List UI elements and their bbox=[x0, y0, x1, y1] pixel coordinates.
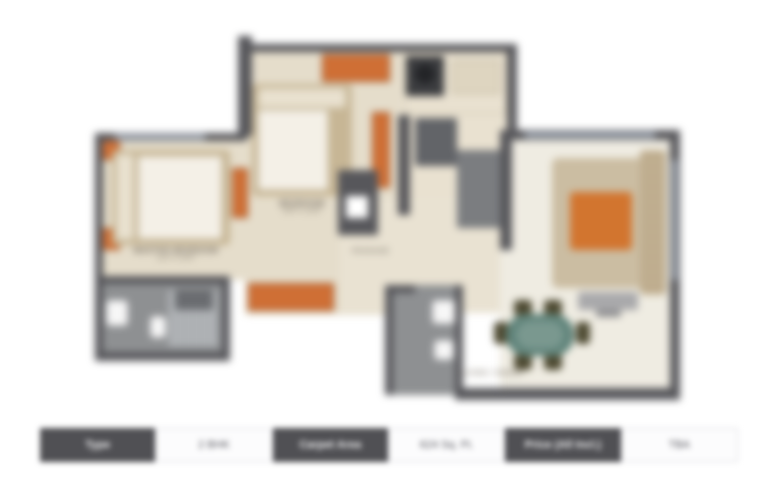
wall-bath-right bbox=[222, 276, 230, 360]
wall-left-outer bbox=[95, 133, 103, 360]
master-bed-pillows bbox=[116, 154, 134, 240]
price-value-cell: TBA bbox=[621, 428, 738, 462]
window-master-top bbox=[115, 134, 205, 140]
utility-shaft bbox=[415, 118, 457, 166]
window-living-right bbox=[672, 160, 677, 280]
toilet1-basin bbox=[150, 316, 166, 338]
floor-plan: MASTER BEDROOM 11'0" X 10'0" BEDROOM 10'… bbox=[0, 0, 780, 420]
floor-plan-blur-layer: MASTER BEDROOM 11'0" X 10'0" BEDROOM 10'… bbox=[0, 0, 780, 420]
passage-label: PASSAGE bbox=[352, 248, 432, 255]
dining-chair-right bbox=[576, 322, 590, 344]
wall-toilet2-right bbox=[455, 285, 463, 395]
master-bedroom-label: MASTER BEDROOM 11'0" X 10'0" bbox=[121, 246, 231, 262]
toilet2-wc bbox=[432, 300, 456, 324]
wall-bedroom2-kitchen bbox=[398, 115, 410, 215]
wall-bath-bottom bbox=[95, 352, 230, 361]
toilet1-counter bbox=[175, 290, 213, 310]
bedroom2-bed-pillows bbox=[258, 88, 346, 108]
wall-master-bath-divider bbox=[95, 276, 230, 284]
carpet-area-header-cell: Carpet Area bbox=[273, 428, 388, 462]
type-header-cell: Type bbox=[40, 428, 155, 462]
wall-living-left bbox=[500, 130, 512, 250]
core-appliance bbox=[346, 196, 368, 218]
bedroom2-dims: 10'0" X 10'0" bbox=[257, 208, 347, 215]
wall-toilet2-top bbox=[385, 285, 415, 293]
bedroom2-label: BEDROOM 10'0" X 10'0" bbox=[257, 199, 347, 215]
master-bedroom-name: MASTER BEDROOM bbox=[121, 246, 231, 255]
type-value-cell: 2 BHK bbox=[155, 428, 272, 462]
master-bedroom-dims: 11'0" X 10'0" bbox=[121, 255, 231, 262]
toilet1-wc bbox=[106, 300, 128, 326]
bedroom2-bed-blanket bbox=[258, 110, 328, 190]
dining-chair-bottom-right bbox=[544, 354, 562, 370]
master-bed-blanket bbox=[138, 156, 222, 239]
wall-living-bottom bbox=[455, 388, 680, 400]
wall-kitchen-right bbox=[507, 44, 517, 134]
kitchen-sink bbox=[415, 64, 435, 84]
window-living-top bbox=[525, 132, 655, 138]
carpet-area-value-cell: 624 Sq. Ft. bbox=[388, 428, 505, 462]
side-rug bbox=[640, 150, 666, 295]
master-wardrobe bbox=[232, 168, 248, 218]
hall-wardrobe bbox=[248, 283, 334, 311]
dining-chair-bottom-left bbox=[514, 354, 532, 370]
tv-unit-base bbox=[596, 310, 621, 317]
toilet2-basin bbox=[434, 340, 454, 360]
dining-table-top bbox=[516, 321, 564, 349]
tv-unit bbox=[578, 292, 638, 310]
sofa-cushion bbox=[570, 192, 632, 250]
living-dining-label: LIVING / DINING bbox=[462, 370, 562, 377]
wall-top bbox=[245, 44, 515, 52]
bedroom2-dresser bbox=[322, 54, 390, 82]
wall-toilet2-left bbox=[385, 285, 393, 395]
kitchen-stove bbox=[452, 60, 500, 94]
details-table: Type 2 BHK Carpet Area 624 Sq. Ft. Price… bbox=[40, 428, 738, 462]
price-header-cell: Price (All Incl.) bbox=[505, 428, 620, 462]
bedroom2-name: BEDROOM bbox=[257, 199, 347, 208]
